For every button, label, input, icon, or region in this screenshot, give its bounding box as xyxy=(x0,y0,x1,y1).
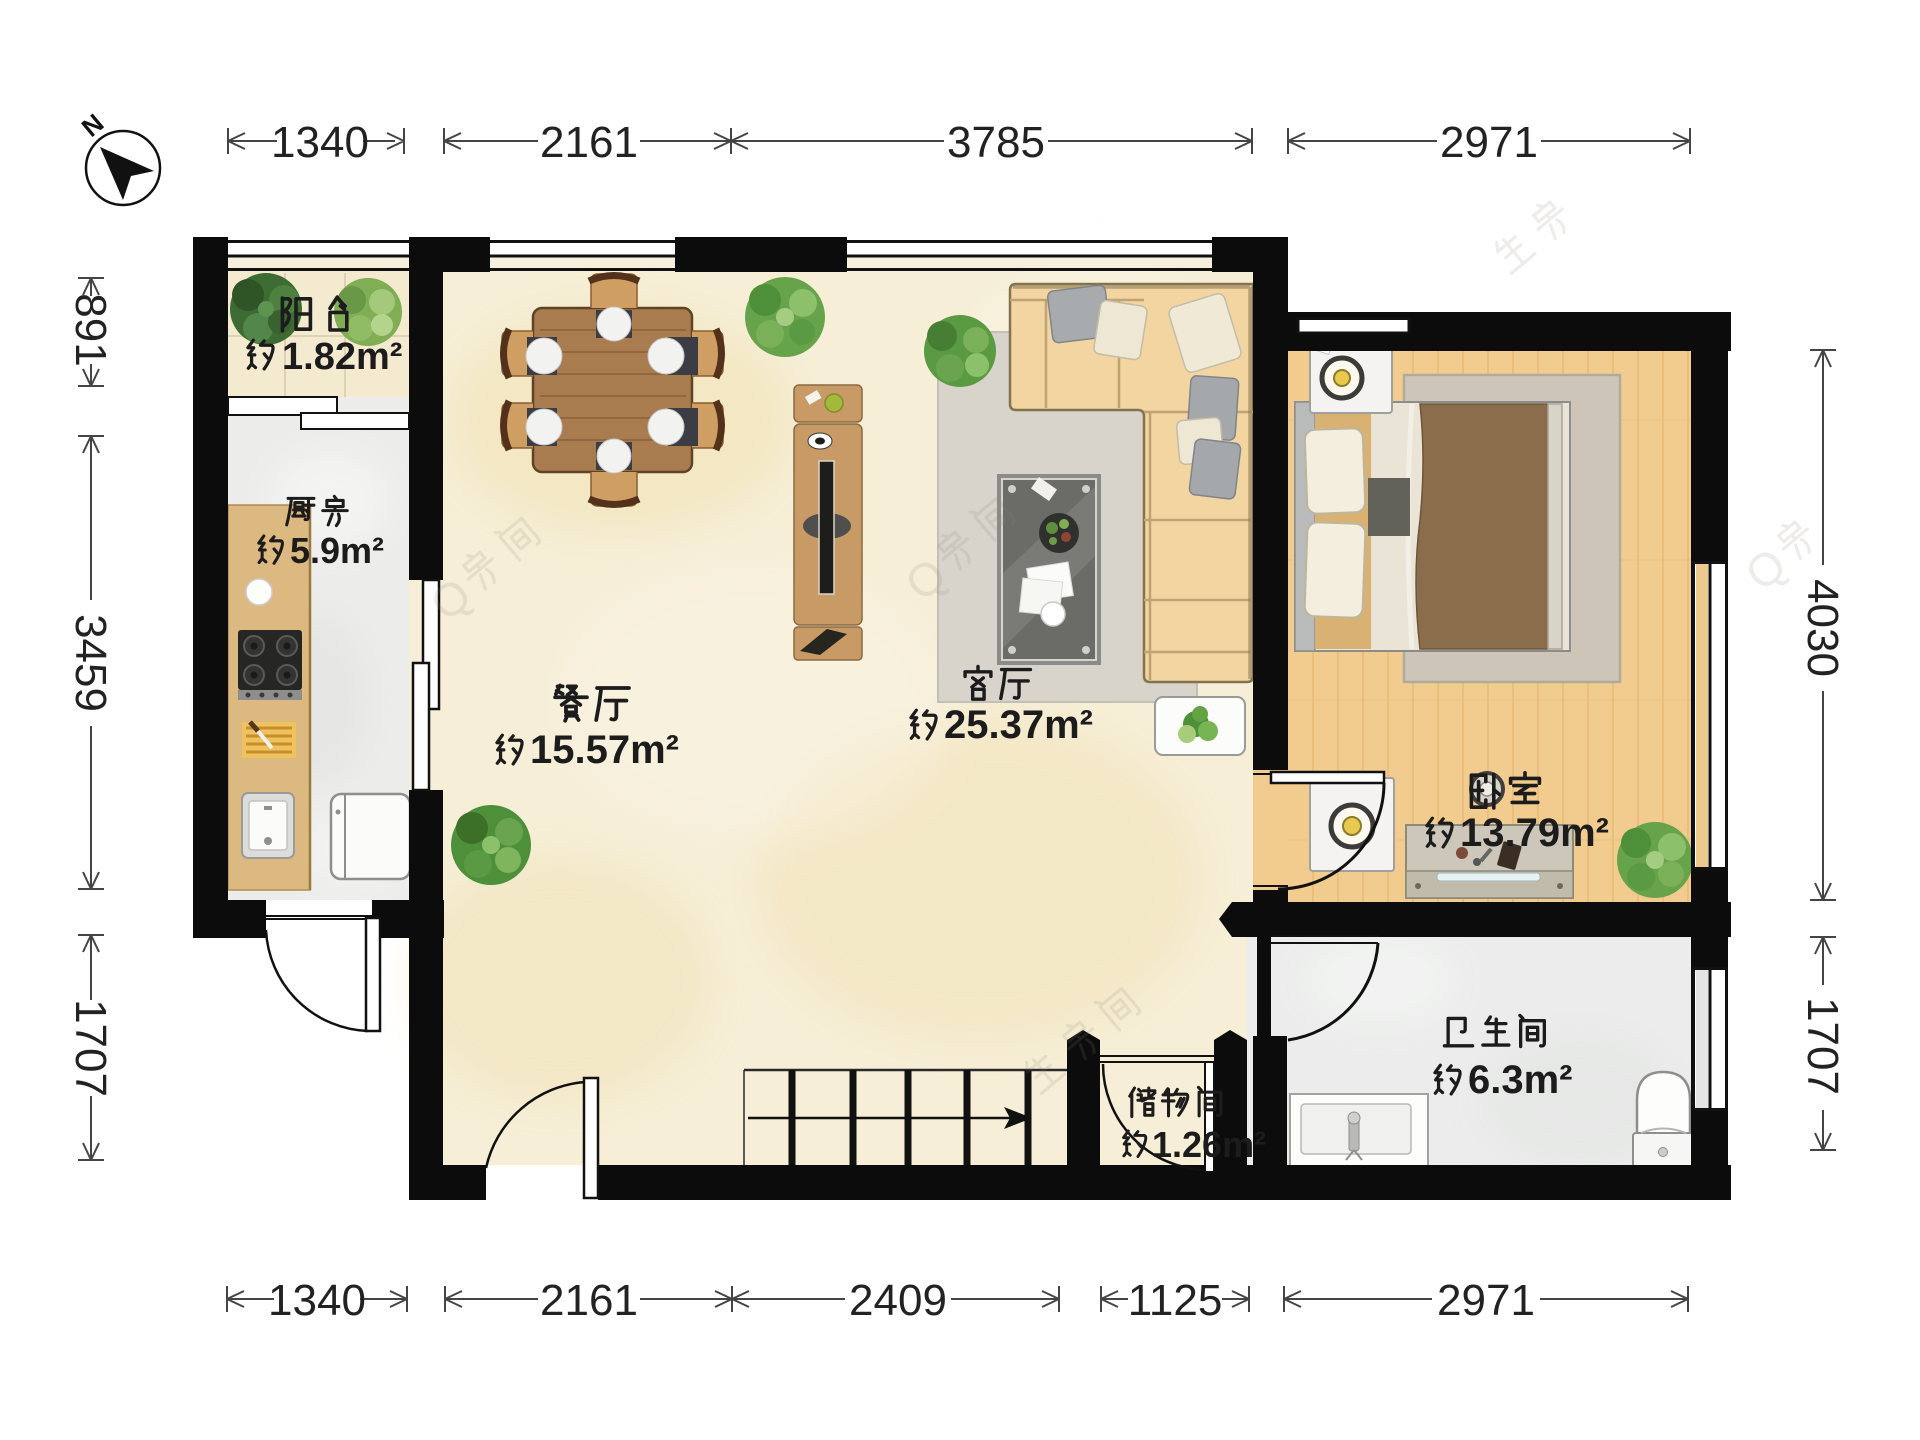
svg-text:1.26m²: 1.26m² xyxy=(1152,1124,1266,1165)
svg-text:2971: 2971 xyxy=(1437,1276,1535,1325)
svg-text:1125: 1125 xyxy=(1128,1276,1223,1325)
svg-text:5.9m²: 5.9m² xyxy=(290,530,384,571)
svg-text:4030: 4030 xyxy=(1798,579,1847,677)
svg-text:1340: 1340 xyxy=(268,1276,366,1325)
svg-text:15.57m²: 15.57m² xyxy=(530,728,679,772)
svg-text:3785: 3785 xyxy=(947,118,1045,167)
svg-text:2161: 2161 xyxy=(540,1276,638,1325)
svg-text:2161: 2161 xyxy=(540,118,638,167)
svg-text:1.82m²: 1.82m² xyxy=(282,336,402,378)
svg-text:1707: 1707 xyxy=(66,999,115,1097)
svg-text:1707: 1707 xyxy=(1798,997,1847,1095)
svg-text:25.37m²: 25.37m² xyxy=(944,703,1093,747)
svg-text:2971: 2971 xyxy=(1440,118,1538,167)
svg-text:1340: 1340 xyxy=(271,118,369,167)
svg-text:13.79m²: 13.79m² xyxy=(1460,811,1609,855)
svg-text:3459: 3459 xyxy=(66,614,115,712)
svg-text:6.3m²: 6.3m² xyxy=(1468,1058,1573,1102)
svg-text:891: 891 xyxy=(66,293,115,366)
svg-text:2409: 2409 xyxy=(849,1276,947,1325)
